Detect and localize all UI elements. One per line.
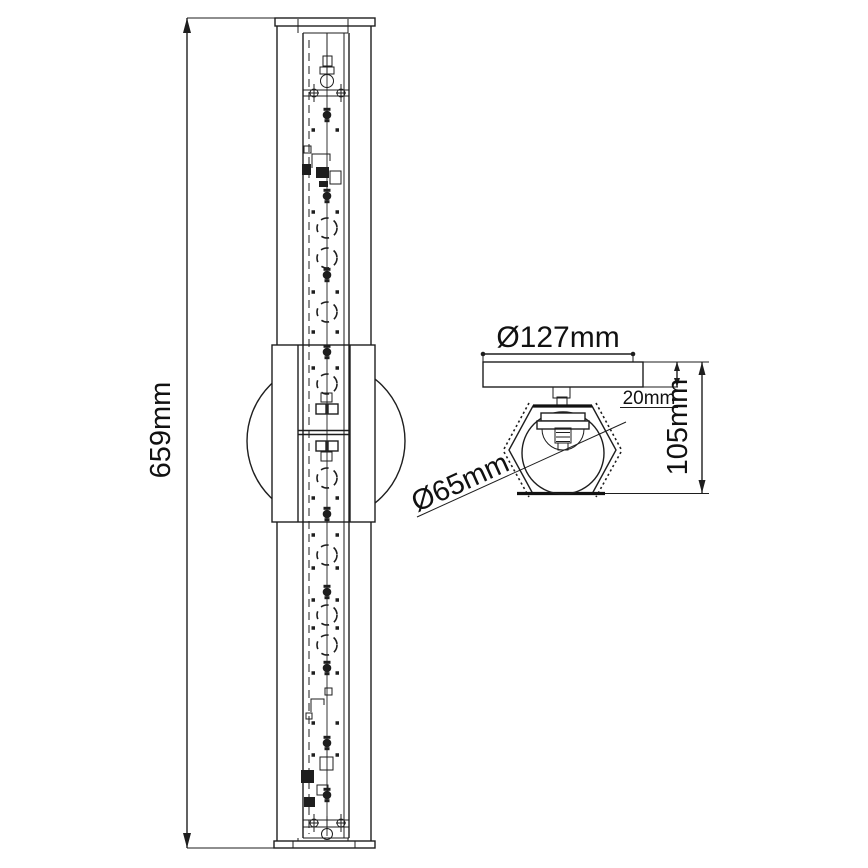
height-dimension-label: 659mm (145, 382, 177, 479)
mount-bracket (272, 345, 375, 522)
arrowhead-down (699, 480, 706, 493)
front-fixture (247, 18, 405, 848)
bottom-end-assembly (303, 814, 349, 840)
top-end-assembly (303, 33, 349, 102)
arrowhead-up (674, 362, 680, 371)
top-cap (275, 18, 375, 26)
stem (553, 387, 570, 407)
arrowhead-down (183, 833, 191, 848)
arrowhead-up (183, 18, 191, 33)
technical-drawing-canvas: 659mm (0, 0, 868, 868)
diameter-dimension-label: Ø127mm (496, 321, 619, 354)
arrowhead-up (699, 362, 706, 375)
hex-shade (504, 403, 621, 497)
side-view: Ø127mm Ø65m (407, 321, 709, 519)
front-view: 659mm (145, 18, 405, 848)
lamp-socket (537, 413, 589, 450)
drawing-svg: 659mm (0, 0, 868, 868)
bottom-cap (274, 841, 375, 848)
height-dimension: 659mm (145, 18, 275, 848)
shade-diameter-label: Ø65mm (407, 447, 514, 519)
side-backplate (483, 362, 643, 387)
depth-dimension-label: 105mm (662, 379, 694, 476)
